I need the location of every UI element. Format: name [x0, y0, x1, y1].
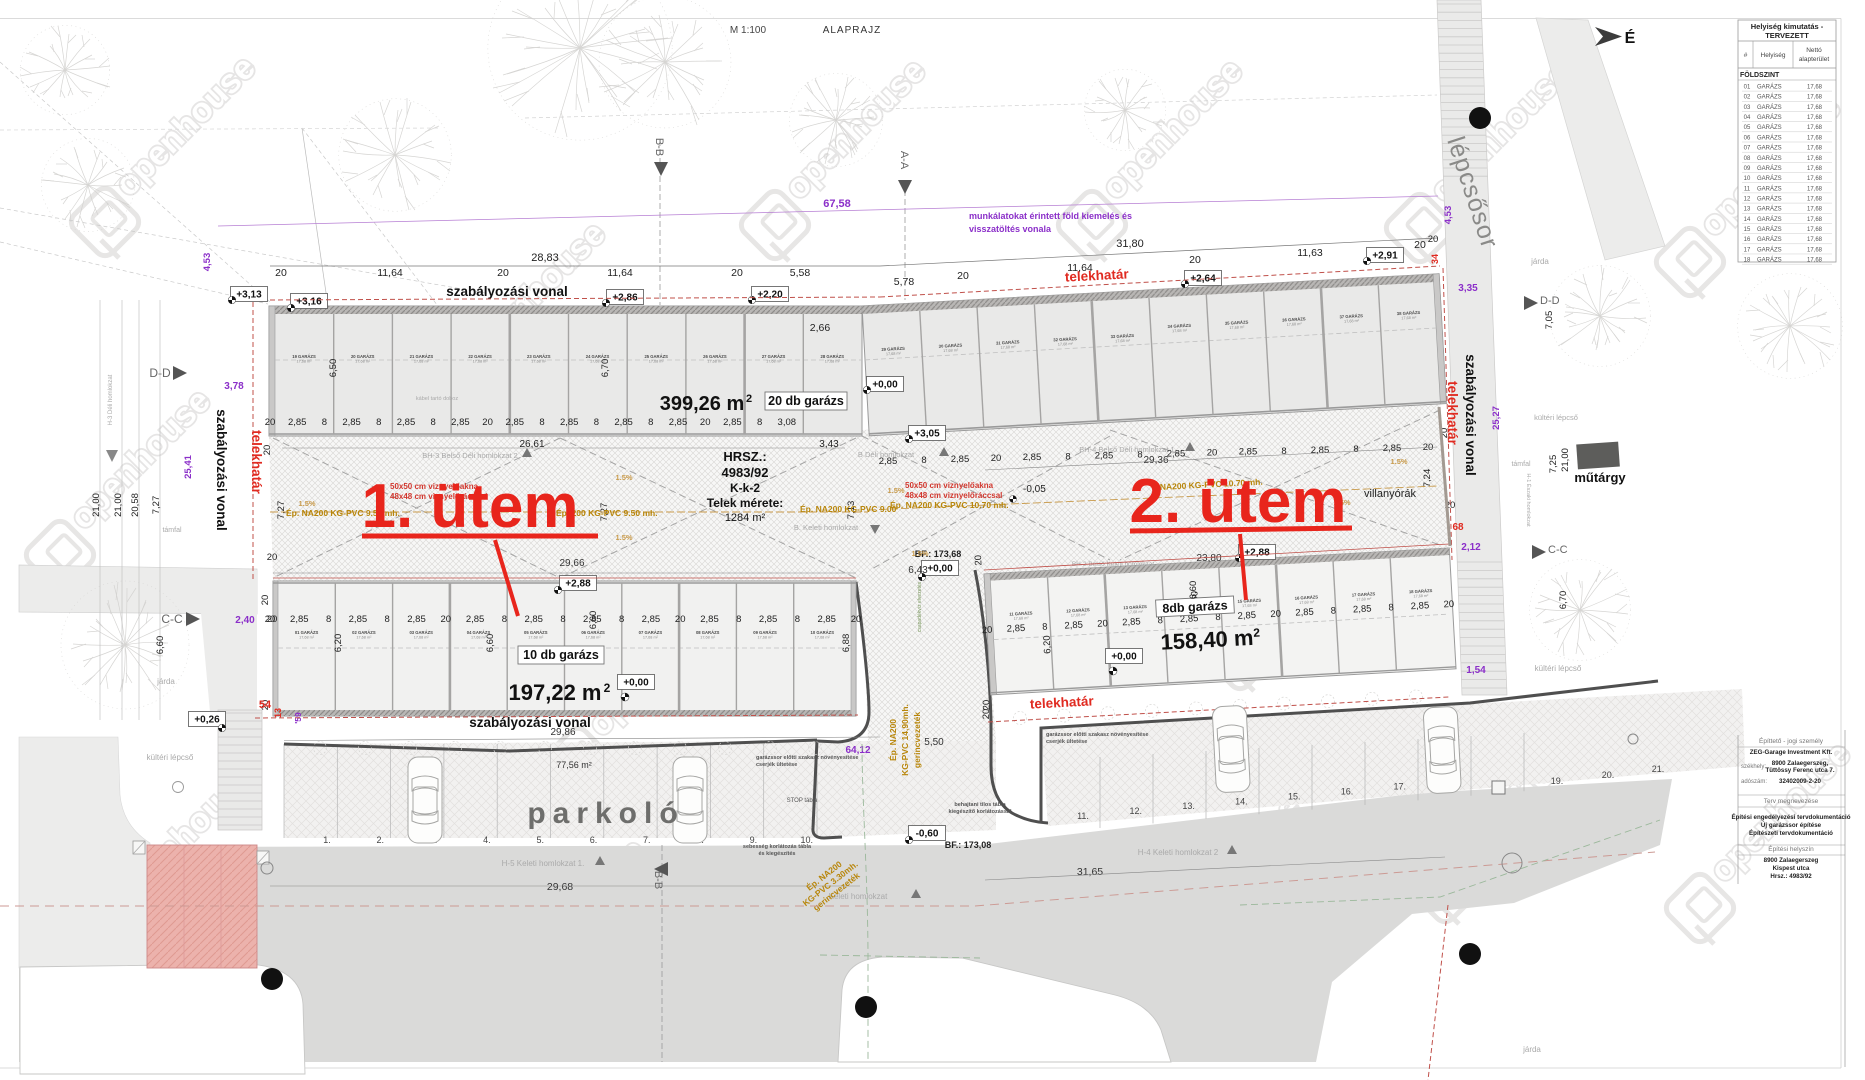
svg-text:+0,00: +0,00	[872, 380, 898, 391]
svg-text:támfal: támfal	[162, 527, 182, 534]
svg-text:1.5%: 1.5%	[615, 473, 632, 482]
svg-text:11: 11	[1744, 186, 1751, 192]
svg-text:8: 8	[376, 417, 381, 428]
svg-text:B-B: B-B	[653, 138, 665, 156]
svg-text:1284 m²: 1284 m²	[725, 512, 766, 524]
svg-text:8: 8	[648, 417, 653, 428]
svg-text:17,68 m²: 17,68 m²	[414, 636, 430, 640]
svg-text:2,85: 2,85	[1410, 600, 1429, 612]
svg-text:17,68: 17,68	[1807, 227, 1823, 233]
svg-text:21 GARÁZS: 21 GARÁZS	[410, 354, 434, 359]
svg-text:2,85: 2,85	[1311, 445, 1330, 456]
svg-text:17,68 m²: 17,68 m²	[707, 360, 723, 364]
svg-text:20: 20	[1189, 254, 1201, 266]
svg-text:17,68: 17,68	[1807, 237, 1823, 243]
svg-text:Építési engedélyezési tervdoku: Építési engedélyezési tervdokumentáció	[1732, 813, 1851, 821]
svg-text:6,70: 6,70	[1558, 591, 1569, 610]
svg-text:8: 8	[560, 614, 565, 625]
svg-text:telekhatár: telekhatár	[1445, 381, 1460, 446]
svg-text:Nettó: Nettó	[1806, 47, 1822, 54]
svg-text:15.: 15.	[1288, 791, 1301, 801]
svg-text:kábel tartó doboz: kábel tartó doboz	[416, 396, 458, 402]
svg-text:Telek mérete:: Telek mérete:	[707, 496, 783, 510]
svg-text:13: 13	[273, 708, 283, 718]
svg-text:20: 20	[1207, 448, 1218, 459]
svg-text:kültéri lépcső: kültéri lépcső	[1534, 413, 1578, 422]
svg-text:399,26 m: 399,26 m	[660, 393, 745, 415]
svg-text:2,85: 2,85	[288, 417, 307, 428]
svg-text:2,12: 2,12	[1461, 542, 1481, 553]
svg-text:20: 20	[1428, 234, 1439, 245]
svg-text:20: 20	[441, 614, 452, 625]
svg-text:székhely:: székhely:	[1741, 764, 1766, 770]
svg-text:17,68: 17,68	[1807, 156, 1823, 162]
svg-text:2,40: 2,40	[235, 615, 255, 626]
svg-text:6,88: 6,88	[841, 634, 852, 653]
svg-text:25 GARÁZS: 25 GARÁZS	[644, 354, 668, 359]
svg-text:20: 20	[482, 417, 493, 428]
svg-text:8: 8	[322, 417, 327, 428]
svg-text:Terv megnevezése: Terv megnevezése	[1764, 798, 1819, 805]
svg-text:1.: 1.	[323, 835, 331, 845]
svg-text:17,68 m²: 17,68 m²	[825, 360, 841, 364]
svg-text:08: 08	[1744, 156, 1751, 162]
svg-text:behajtani tilos tábla: behajtani tilos tábla	[954, 802, 1006, 808]
svg-text:2: 2	[1253, 626, 1261, 640]
svg-text:2,85: 2,85	[397, 417, 416, 428]
svg-text:14: 14	[1744, 217, 1751, 223]
svg-text:17,68: 17,68	[1807, 85, 1823, 91]
svg-text:17,68: 17,68	[1807, 146, 1823, 152]
svg-text:24 GARÁZS: 24 GARÁZS	[586, 354, 610, 359]
svg-text:20.: 20.	[1602, 770, 1615, 780]
svg-text:20: 20	[497, 267, 509, 279]
svg-text:csapadékvíz elvezetés: csapadékvíz elvezetés	[917, 581, 923, 632]
svg-text:8: 8	[431, 417, 436, 428]
svg-text:+3,13: +3,13	[236, 290, 262, 301]
svg-text:15: 15	[1744, 227, 1751, 233]
svg-text:19.: 19.	[1551, 776, 1564, 786]
svg-text:16.: 16.	[1341, 787, 1354, 797]
svg-text:2,66: 2,66	[810, 322, 831, 334]
svg-text:4983/92: 4983/92	[722, 465, 769, 480]
svg-text:17,68 m²: 17,68 m²	[586, 636, 602, 640]
svg-text:20 GARÁZS: 20 GARÁZS	[351, 354, 375, 359]
svg-text:Építészeti tervdokumentáció: Építészeti tervdokumentáció	[1749, 829, 1833, 837]
svg-text:2,85: 2,85	[642, 614, 661, 625]
svg-text:2.: 2.	[377, 835, 385, 845]
svg-text:-0,60: -0,60	[916, 829, 939, 840]
svg-text:17,68: 17,68	[1807, 258, 1823, 264]
svg-text:garázssor előtti szakasz növén: garázssor előtti szakasz növényesítése	[756, 755, 858, 761]
svg-text:BF.: 173,08: BF.: 173,08	[945, 840, 992, 850]
svg-text:4,53: 4,53	[202, 253, 213, 272]
svg-text:01: 01	[1744, 85, 1751, 91]
svg-text:21,00: 21,00	[91, 493, 102, 517]
svg-text:Ép. NA200 KG-PVC 10.70 mh.: Ép. NA200 KG-PVC 10.70 mh.	[890, 500, 1009, 510]
svg-text:20: 20	[675, 614, 686, 625]
svg-text:támfal: támfal	[1511, 461, 1531, 468]
svg-text:17,68: 17,68	[1807, 196, 1823, 202]
svg-text:2,85: 2,85	[560, 417, 579, 428]
svg-text:17,68 m²: 17,68 m²	[649, 360, 665, 364]
svg-text:KG-PVC 14,90mh.: KG-PVC 14,90mh.	[900, 704, 910, 776]
svg-text:GARÁZS: GARÁZS	[1757, 206, 1782, 213]
svg-text:parkoló: parkoló	[527, 797, 684, 830]
svg-text:Ép. NA200: Ép. NA200	[888, 719, 898, 761]
svg-text:+0,00: +0,00	[623, 678, 649, 689]
svg-text:4.: 4.	[483, 835, 491, 845]
svg-text:20: 20	[267, 552, 278, 563]
svg-text:11.: 11.	[1077, 811, 1089, 821]
svg-text:17,68: 17,68	[1807, 217, 1823, 223]
svg-text:2,85: 2,85	[466, 614, 485, 625]
svg-text:7.: 7.	[643, 835, 651, 845]
svg-text:-0,05: -0,05	[1023, 484, 1046, 495]
svg-text:8900 Zalaegerszeg: 8900 Zalaegerszeg	[1764, 857, 1819, 864]
svg-text:+0,00: +0,00	[1111, 652, 1137, 663]
svg-text:20: 20	[1270, 608, 1281, 620]
svg-text:17,68 m²: 17,68 m²	[356, 636, 372, 640]
svg-text:és kiegészítés: és kiegészítés	[759, 851, 796, 857]
svg-text:20: 20	[700, 417, 711, 428]
svg-text:villanyórák: villanyórák	[1364, 488, 1416, 500]
svg-text:A-A: A-A	[898, 151, 910, 170]
svg-text:HRSZ.:: HRSZ.:	[723, 449, 766, 464]
svg-text:ALAPRAJZ: ALAPRAJZ	[823, 25, 882, 36]
svg-text:H-4 Keleti homlokzat 2: H-4 Keleti homlokzat 2	[1138, 848, 1219, 857]
svg-text:17,68 m²: 17,68 m²	[531, 360, 547, 364]
svg-text:20: 20	[731, 267, 743, 279]
svg-text:77,56 m²: 77,56 m²	[556, 760, 592, 770]
svg-text:3,78: 3,78	[224, 381, 244, 392]
svg-text:BH-3 Belső Déli homlokzat 2: BH-3 Belső Déli homlokzat 2	[422, 451, 517, 460]
svg-text:B Déli homlokzat: B Déli homlokzat	[858, 450, 915, 459]
svg-text:5,58: 5,58	[790, 267, 811, 279]
svg-text:11,64: 11,64	[377, 267, 403, 279]
svg-text:18: 18	[1744, 258, 1751, 264]
svg-text:08 GARÁZS: 08 GARÁZS	[696, 630, 720, 635]
svg-text:23 GARÁZS: 23 GARÁZS	[527, 354, 551, 359]
svg-text:17.: 17.	[1394, 782, 1407, 792]
svg-text:03: 03	[1744, 105, 1751, 111]
svg-text:5.: 5.	[536, 835, 544, 845]
svg-text:2,85: 2,85	[759, 614, 778, 625]
svg-text:8: 8	[1042, 622, 1048, 633]
svg-text:17,68 m²: 17,68 m²	[758, 636, 774, 640]
svg-text:STOP tábla: STOP tábla	[787, 798, 818, 804]
svg-text:29,68: 29,68	[547, 881, 573, 893]
svg-text:20: 20	[275, 267, 287, 279]
svg-text:20: 20	[851, 614, 862, 625]
svg-text:10 GARÁZS: 10 GARÁZS	[811, 630, 835, 635]
svg-text:20: 20	[981, 709, 992, 720]
svg-text:+3,05: +3,05	[914, 429, 940, 440]
svg-text:2,85: 2,85	[723, 417, 742, 428]
svg-text:11,64: 11,64	[607, 267, 633, 279]
svg-text:GARÁZS: GARÁZS	[1757, 124, 1782, 131]
svg-text:szabályozási vonal: szabályozási vonal	[446, 284, 568, 299]
svg-text:2,85: 2,85	[1353, 603, 1372, 615]
svg-text:23,80: 23,80	[1196, 553, 1221, 564]
svg-text:C-C: C-C	[1548, 544, 1568, 556]
svg-text:GARÁZS: GARÁZS	[1757, 114, 1782, 121]
svg-text:GARÁZS: GARÁZS	[1757, 246, 1782, 253]
svg-text:02: 02	[1744, 95, 1751, 101]
svg-text:8: 8	[502, 614, 507, 625]
svg-text:16: 16	[1744, 237, 1751, 243]
svg-text:2,85: 2,85	[669, 417, 688, 428]
svg-text:adószám:: adószám:	[1741, 779, 1767, 785]
svg-text:13: 13	[1744, 207, 1751, 213]
svg-text:2,85: 2,85	[1023, 452, 1042, 463]
svg-text:B-B: B-B	[652, 871, 664, 889]
svg-text:54: 54	[259, 699, 272, 711]
svg-text:20: 20	[1414, 239, 1426, 251]
svg-text:17,68 m²: 17,68 m²	[528, 636, 544, 640]
svg-text:6,20: 6,20	[1042, 635, 1054, 654]
svg-text:14.: 14.	[1235, 796, 1248, 806]
svg-text:kültéri lépcső: kültéri lépcső	[1535, 664, 1582, 673]
svg-text:32402009-2-20: 32402009-2-20	[1779, 778, 1822, 785]
svg-text:28 GARÁZS: 28 GARÁZS	[821, 354, 845, 359]
svg-text:17,68 m²: 17,68 m²	[700, 636, 716, 640]
svg-text:+2,88: +2,88	[1244, 548, 1270, 559]
svg-text:8: 8	[1330, 605, 1336, 616]
svg-text:09 GARÁZS: 09 GARÁZS	[753, 630, 777, 635]
svg-text:K-k-2: K-k-2	[730, 481, 760, 495]
svg-text:17,68 m²: 17,68 m²	[414, 360, 430, 364]
svg-text:GARÁZS: GARÁZS	[1757, 175, 1782, 182]
svg-text:7,25: 7,25	[1548, 455, 1559, 474]
svg-text:17,68 m²: 17,68 m²	[473, 360, 489, 364]
svg-text:2,85: 2,85	[817, 614, 836, 625]
svg-text:34: 34	[1430, 254, 1440, 264]
svg-text:6,20: 6,20	[333, 634, 344, 653]
svg-text:Új garázssor építése: Új garázssor építése	[1761, 822, 1822, 829]
svg-text:19 GARÁZS: 19 GARÁZS	[292, 354, 316, 359]
svg-text:8: 8	[1388, 602, 1394, 613]
svg-text:GARÁZS: GARÁZS	[1757, 216, 1782, 223]
svg-text:25,41: 25,41	[183, 454, 194, 478]
svg-text:2,85: 2,85	[407, 614, 426, 625]
svg-text:#: #	[1744, 52, 1748, 59]
svg-text:GARÁZS: GARÁZS	[1757, 94, 1782, 101]
svg-text:8: 8	[594, 417, 599, 428]
svg-text:31,65: 31,65	[1077, 866, 1103, 878]
svg-text:26,61: 26,61	[519, 439, 544, 450]
svg-text:6,60: 6,60	[485, 634, 496, 653]
svg-text:3,35: 3,35	[1458, 283, 1478, 294]
svg-text:2,85: 2,85	[342, 417, 361, 428]
svg-text:20: 20	[260, 595, 271, 606]
svg-text:12.: 12.	[1130, 806, 1143, 816]
svg-text:kültéri lépcső: kültéri lépcső	[147, 753, 194, 762]
svg-text:BH-4 Belső Déli homlokzat 1.: BH-4 Belső Déli homlokzat 1.	[1079, 445, 1177, 454]
svg-text:07: 07	[1744, 146, 1751, 152]
svg-text:6.: 6.	[590, 835, 598, 845]
svg-text:17,68: 17,68	[1807, 95, 1823, 101]
svg-text:szabályozási vonal: szabályozási vonal	[214, 409, 229, 531]
svg-text:8: 8	[619, 614, 624, 625]
svg-text:20: 20	[991, 453, 1002, 464]
svg-text:2,85: 2,85	[290, 614, 309, 625]
svg-text:29,86: 29,86	[550, 727, 575, 738]
svg-text:6,50: 6,50	[328, 359, 339, 378]
svg-text:ZEG-Garage Investment Kft.: ZEG-Garage Investment Kft.	[1750, 749, 1833, 756]
svg-text:TERVEZETT: TERVEZETT	[1765, 31, 1809, 40]
svg-text:17: 17	[1744, 247, 1751, 253]
svg-text:17,68: 17,68	[1807, 125, 1823, 131]
svg-text:2,85: 2,85	[700, 614, 719, 625]
svg-text:7,24: 7,24	[1422, 469, 1433, 488]
svg-text:1. ütem: 1. ütem	[361, 472, 578, 541]
svg-text:10: 10	[1744, 176, 1751, 182]
svg-text:1.5%: 1.5%	[615, 533, 632, 542]
svg-text:26 GARÁZS: 26 GARÁZS	[703, 354, 727, 359]
svg-text:158,40 m: 158,40 m	[1160, 625, 1254, 655]
svg-text:8: 8	[757, 417, 762, 428]
svg-text:29,36: 29,36	[1143, 455, 1168, 466]
svg-text:FÖLDSZINT: FÖLDSZINT	[1740, 70, 1780, 79]
svg-text:1.5%: 1.5%	[1390, 457, 1407, 466]
svg-text:21.: 21.	[1652, 764, 1665, 774]
svg-text:17,68 m²: 17,68 m²	[643, 636, 659, 640]
svg-text:5,78: 5,78	[894, 276, 915, 288]
svg-text:4,53: 4,53	[1443, 206, 1454, 225]
svg-text:07 GARÁZS: 07 GARÁZS	[639, 630, 663, 635]
svg-text:20: 20	[973, 555, 985, 566]
svg-text:GARÁZS: GARÁZS	[1757, 226, 1782, 233]
svg-text:17,68: 17,68	[1807, 115, 1823, 121]
svg-text:197,22 m: 197,22 m	[509, 680, 602, 705]
svg-text:2,85: 2,85	[1383, 443, 1402, 454]
svg-text:5,50: 5,50	[924, 737, 944, 748]
svg-text:8: 8	[1353, 444, 1358, 455]
svg-text:szabályozási vonal: szabályozási vonal	[1463, 354, 1478, 476]
svg-text:1.5%: 1.5%	[911, 549, 928, 558]
svg-text:17,68 m²: 17,68 m²	[297, 360, 313, 364]
svg-text:8: 8	[539, 417, 544, 428]
svg-text:20: 20	[1443, 599, 1454, 611]
svg-text:2,85: 2,85	[349, 614, 368, 625]
svg-text:+3,16: +3,16	[296, 297, 322, 308]
svg-text:17,68 m²: 17,68 m²	[815, 636, 831, 640]
svg-text:Építési helyszín: Építési helyszín	[1768, 844, 1814, 853]
svg-text:8: 8	[795, 614, 800, 625]
svg-text:É: É	[1625, 28, 1636, 47]
svg-text:cserjék ültetése: cserjék ültetése	[756, 762, 797, 768]
svg-text:munkálatokat érintett föld kie: munkálatokat érintett föld kiemelés és	[969, 211, 1132, 221]
svg-text:GARÁZS: GARÁZS	[1757, 84, 1782, 91]
svg-text:járda: járda	[1522, 1045, 1541, 1054]
svg-text:Tüttössy Ferenc utca 7.: Tüttössy Ferenc utca 7.	[1765, 767, 1834, 774]
svg-text:12: 12	[1744, 196, 1751, 202]
svg-text:GARÁZS: GARÁZS	[1757, 236, 1782, 243]
svg-text:7,05: 7,05	[1544, 311, 1555, 330]
svg-text:7,27: 7,27	[151, 496, 162, 515]
svg-text:GARÁZS: GARÁZS	[1757, 165, 1782, 172]
svg-text:+0,00: +0,00	[927, 564, 953, 575]
svg-text:50x50 cm viznyelőakna: 50x50 cm viznyelőakna	[905, 481, 994, 490]
svg-text:+0,26: +0,26	[194, 715, 220, 726]
svg-text:67,58: 67,58	[823, 198, 851, 210]
svg-text:2: 2	[604, 681, 611, 695]
svg-text:2,85: 2,85	[524, 614, 543, 625]
svg-text:GARÁZS: GARÁZS	[1757, 104, 1782, 111]
svg-text:8: 8	[736, 614, 741, 625]
svg-text:GARÁZS: GARÁZS	[1757, 134, 1782, 141]
svg-text:+2,91: +2,91	[1372, 251, 1398, 262]
svg-text:H-1 Északi homlokzat: H-1 Északi homlokzat	[1525, 473, 1532, 527]
svg-text:D-D: D-D	[1540, 295, 1560, 307]
svg-text:telekhatár: telekhatár	[249, 430, 264, 495]
svg-text:6,70: 6,70	[600, 359, 611, 378]
svg-text:Kispest utca: Kispest utca	[1773, 865, 1810, 872]
svg-text:2,85: 2,85	[1122, 616, 1141, 628]
svg-text:8: 8	[921, 455, 926, 466]
svg-text:járda: járda	[156, 677, 175, 686]
svg-text:21,00: 21,00	[1560, 448, 1571, 472]
svg-text:cserjék ültetése: cserjék ültetése	[1046, 739, 1087, 745]
svg-text:2,85: 2,85	[1064, 620, 1083, 632]
svg-text:8: 8	[385, 614, 390, 625]
svg-text:31,80: 31,80	[1116, 238, 1144, 250]
svg-text:13.: 13.	[1182, 801, 1195, 811]
svg-text:04: 04	[1744, 115, 1751, 121]
svg-text:Építtető - jogi személy: Építtető - jogi személy	[1759, 736, 1824, 745]
svg-text:GARÁZS: GARÁZS	[1757, 145, 1782, 152]
svg-text:06 GARÁZS: 06 GARÁZS	[581, 630, 605, 635]
svg-text:visszatöltés vonala: visszatöltés vonala	[969, 224, 1052, 234]
svg-text:20: 20	[267, 614, 278, 625]
svg-text:20,58: 20,58	[130, 493, 141, 517]
svg-text:3,43: 3,43	[819, 439, 839, 450]
svg-text:Ép. NA200 KG-PVC 9.00: Ép. NA200 KG-PVC 9.00	[800, 504, 897, 514]
svg-text:GARÁZS: GARÁZS	[1757, 257, 1782, 264]
svg-text:+2,88: +2,88	[565, 579, 591, 590]
svg-text:68: 68	[1452, 522, 1464, 533]
svg-text:22 GARÁZS: 22 GARÁZS	[468, 354, 492, 359]
svg-text:2,85: 2,85	[1237, 610, 1256, 622]
svg-text:21,00: 21,00	[113, 493, 124, 517]
svg-text:17,68: 17,68	[1807, 186, 1823, 192]
svg-text:17,68: 17,68	[1807, 207, 1823, 213]
svg-text:01 GARÁZS: 01 GARÁZS	[295, 630, 319, 635]
svg-text:+2,20: +2,20	[757, 290, 783, 301]
svg-text:2,85: 2,85	[506, 417, 525, 428]
svg-text:02 GARÁZS: 02 GARÁZS	[352, 630, 376, 635]
svg-text:17,68 m²: 17,68 m²	[299, 636, 315, 640]
svg-text:09: 09	[1744, 166, 1751, 172]
svg-text:6,60: 6,60	[155, 636, 166, 655]
svg-text:Helyiség kimutatás -: Helyiség kimutatás -	[1751, 22, 1824, 31]
svg-text:2,85: 2,85	[614, 417, 633, 428]
svg-text:2,85: 2,85	[451, 417, 470, 428]
svg-text:garázssor előtti szakasz növén: garázssor előtti szakasz növényesítése	[1046, 732, 1148, 738]
svg-text:1.5%: 1.5%	[298, 499, 315, 508]
svg-text:25,27: 25,27	[1491, 406, 1502, 430]
svg-text:20: 20	[957, 270, 969, 282]
svg-text:17,68: 17,68	[1807, 105, 1823, 111]
svg-text:2. ütem: 2. ütem	[1129, 467, 1346, 536]
svg-text:2,85: 2,85	[1295, 607, 1314, 619]
svg-text:8: 8	[1065, 451, 1070, 462]
svg-text:27 GARÁZS: 27 GARÁZS	[762, 354, 786, 359]
svg-text:6,60: 6,60	[588, 611, 599, 630]
svg-text:03 GARÁZS: 03 GARÁZS	[409, 630, 433, 635]
svg-text:M 1:100: M 1:100	[730, 25, 767, 36]
